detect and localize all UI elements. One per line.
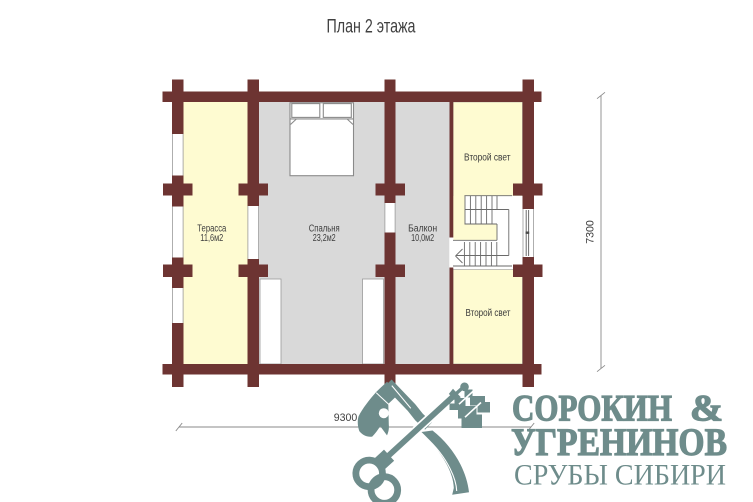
svg-text:23,2м2: 23,2м2 [313, 233, 336, 244]
svg-text:9300: 9300 [334, 412, 358, 424]
svg-text:11,6м2: 11,6м2 [200, 233, 223, 244]
svg-text:7300: 7300 [585, 220, 597, 244]
svg-text:УГРЕНИНОВ: УГРЕНИНОВ [511, 421, 727, 464]
svg-text:СРУБЫ СИБИРИ: СРУБЫ СИБИРИ [514, 459, 726, 492]
svg-text:План 2 этажа: План 2 этажа [327, 17, 416, 38]
svg-text:10,0м2: 10,0м2 [411, 233, 434, 244]
svg-text:Второй свет: Второй свет [466, 308, 511, 319]
svg-text:Второй свет: Второй свет [464, 152, 511, 163]
